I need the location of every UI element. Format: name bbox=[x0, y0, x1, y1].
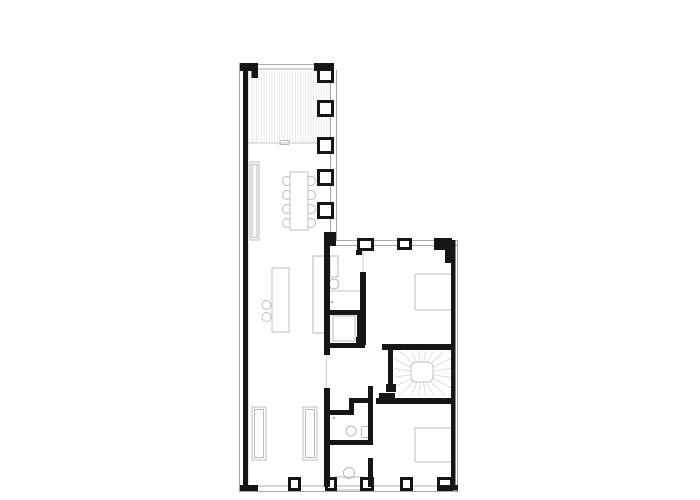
closet-right-wall bbox=[357, 310, 362, 348]
window-pier-void bbox=[320, 205, 331, 216]
window-pier-void bbox=[360, 241, 371, 248]
corner-pier-wing-return bbox=[445, 247, 452, 263]
wc-jog-horizontal bbox=[349, 398, 371, 403]
closet-bottom-wall bbox=[328, 343, 365, 348]
pier-foot bbox=[356, 250, 362, 255]
bar-stool bbox=[262, 313, 271, 322]
exterior-wall-right bbox=[451, 240, 456, 490]
floor-plan-canvas bbox=[0, 0, 700, 500]
ensuite-cabinet bbox=[330, 256, 338, 277]
bottom-wall-corner-left bbox=[240, 485, 258, 491]
bedroom-lower-left-wall bbox=[368, 458, 373, 487]
interior-wall-main-lower bbox=[324, 388, 330, 487]
window-pier-void bbox=[400, 241, 409, 247]
closet-liner bbox=[333, 316, 355, 341]
stair-landing bbox=[411, 362, 433, 382]
wc-drain bbox=[333, 417, 335, 419]
stair-newel-lower bbox=[379, 393, 395, 404]
bed-upper-bedroom bbox=[415, 274, 452, 310]
ensuite-drain bbox=[331, 301, 333, 303]
bath-vanity bbox=[334, 477, 363, 490]
bar-stool bbox=[262, 301, 271, 310]
corner-pier-top-left-return bbox=[252, 70, 259, 78]
window-pier-void bbox=[320, 172, 331, 183]
kitchen-island bbox=[272, 268, 289, 332]
window-pier-void bbox=[320, 140, 331, 151]
bed-lower-bedroom bbox=[415, 428, 452, 462]
corner-pier-top-left bbox=[240, 63, 258, 71]
stair-newel-upper bbox=[386, 384, 396, 392]
sideboard bbox=[250, 162, 259, 240]
wc-right-wall bbox=[368, 398, 373, 440]
bottom-wall-corner-right bbox=[437, 485, 458, 491]
wc-bottom-wall bbox=[328, 440, 373, 445]
window-pier-void bbox=[320, 71, 331, 80]
dining-table bbox=[290, 172, 308, 230]
stair-left-wall bbox=[388, 350, 393, 386]
interior-wall-main-upper bbox=[324, 243, 330, 355]
floor-plan-page bbox=[0, 0, 700, 500]
exterior-wall-left bbox=[243, 63, 248, 487]
ensuite-sink bbox=[329, 279, 339, 289]
window-pier-void bbox=[291, 480, 298, 488]
window-pier-void bbox=[320, 103, 331, 114]
wc-sink bbox=[346, 426, 356, 436]
window-pier-void bbox=[403, 480, 410, 488]
stair-top-wall bbox=[382, 344, 455, 350]
